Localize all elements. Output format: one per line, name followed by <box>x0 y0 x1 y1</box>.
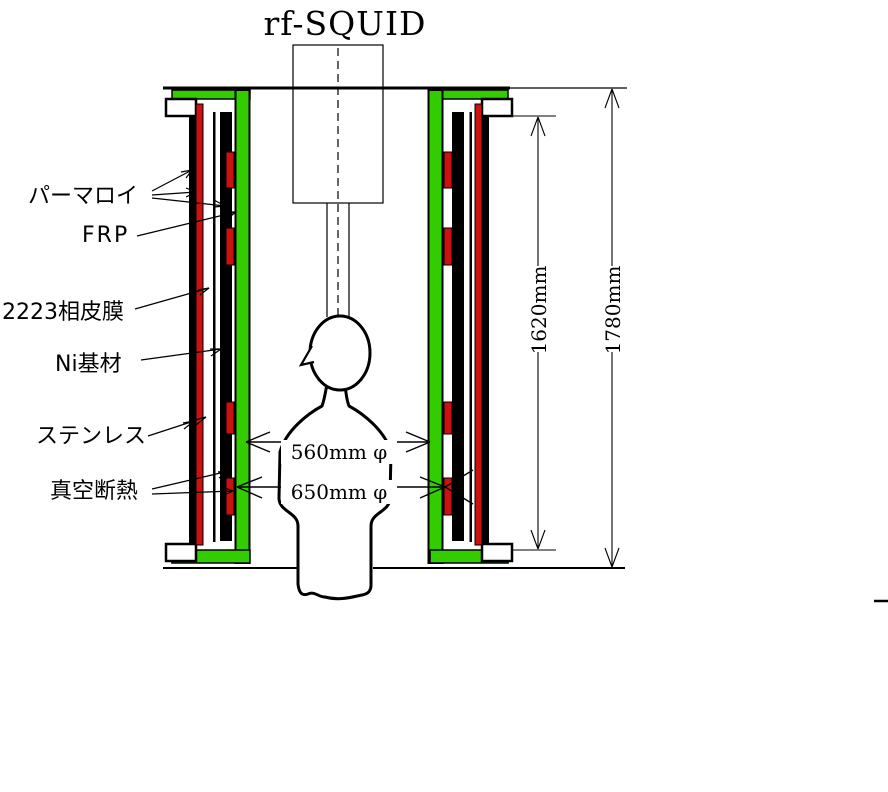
flange-notch-bottom-left <box>166 544 196 561</box>
vessel-outline <box>163 88 888 601</box>
hts-film-segment <box>444 402 452 434</box>
hts-film-segment <box>226 478 234 515</box>
dim-text-1620: 1620mm <box>527 265 549 355</box>
hts-film-segment <box>226 228 234 265</box>
label-2223-film: 2223相皮膜 <box>2 300 124 326</box>
dim-text-650: 650mm φ <box>281 480 397 504</box>
figure-head <box>310 316 370 390</box>
film-2223-strip-right <box>475 104 482 545</box>
dim-text-560: 560mm φ <box>281 440 397 464</box>
right-wall-layers <box>444 104 489 545</box>
hts-film-segment <box>226 152 234 188</box>
dim-text-1780: 1780mm <box>601 265 623 355</box>
label-frp: FRP <box>82 223 129 249</box>
flange-notch-bottom-right <box>482 544 512 561</box>
flange-notch-top-right <box>482 99 512 116</box>
stainless-wall-right <box>482 115 489 545</box>
label-stainless: ステンレス <box>36 424 146 450</box>
diagram-title: rf-SQUID <box>250 4 440 43</box>
ni-substrate-line-right <box>470 112 473 542</box>
squid-probe <box>293 45 383 320</box>
diagram-canvas: rf-SQUID パーマロイ FRP 2223相皮膜 Ni基材 ステンレス 真空… <box>0 0 888 792</box>
shield-diagram <box>0 0 888 792</box>
flange-notch-top-left <box>166 99 196 116</box>
label-vacuum-insulation: 真空断熱 <box>50 479 138 505</box>
label-permalloy: パーマロイ <box>28 184 138 210</box>
ni-substrate-line-left <box>213 112 216 542</box>
hts-film-segment <box>444 152 452 188</box>
label-ni-substrate: Ni基材 <box>55 352 122 378</box>
figure-nose <box>301 346 314 365</box>
frp-wall-right <box>429 90 443 563</box>
hts-film-segment <box>444 228 452 265</box>
hts-film-segment <box>226 402 234 434</box>
